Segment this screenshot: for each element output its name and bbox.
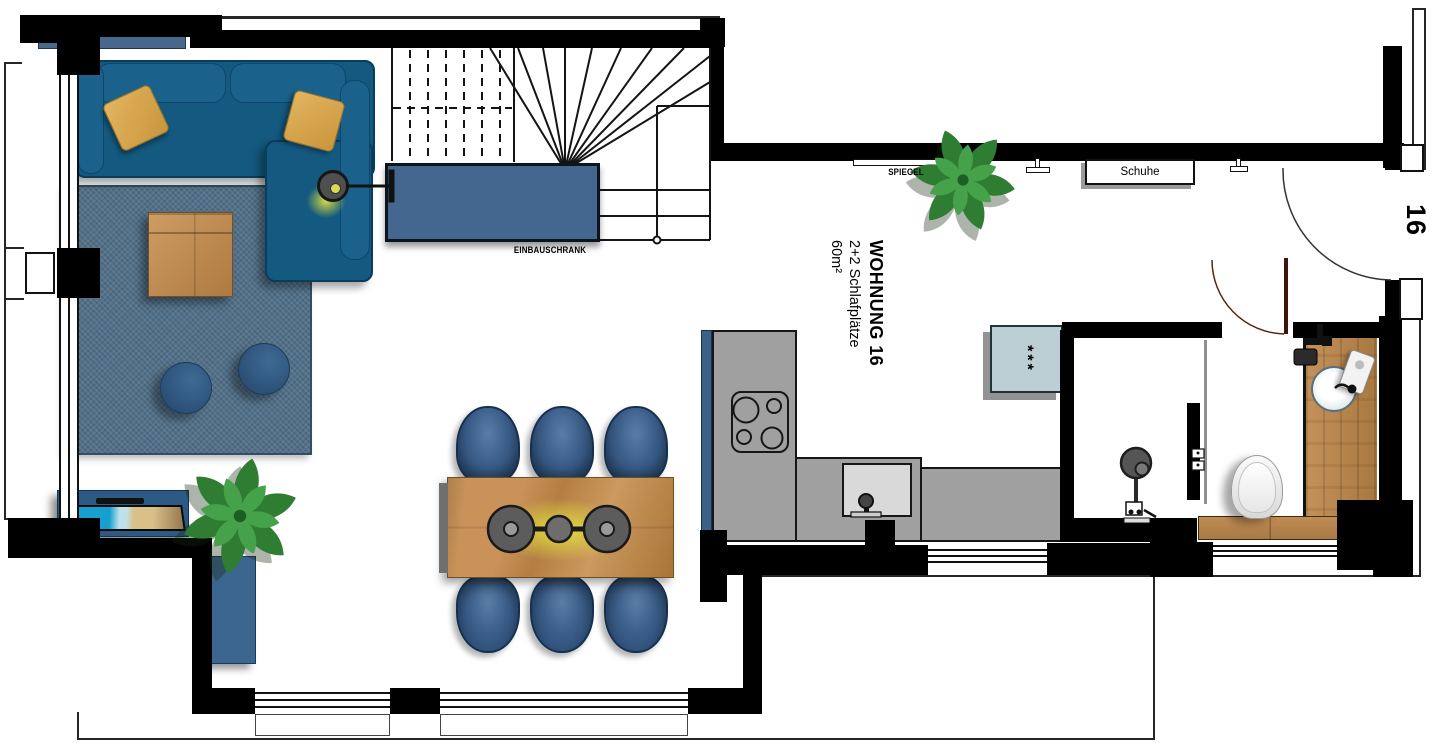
wall bbox=[700, 18, 725, 47]
outline bbox=[4, 62, 6, 520]
door-frame bbox=[1400, 144, 1424, 172]
kitchen-counter bbox=[920, 467, 1062, 542]
unit-capacity: 2+2 Schlafplätze bbox=[846, 240, 862, 366]
wall bbox=[57, 248, 100, 298]
dining-chair bbox=[456, 406, 520, 484]
outline bbox=[1424, 8, 1426, 170]
window bbox=[928, 549, 1047, 563]
window-sill bbox=[255, 714, 390, 736]
washer-symbol: *** bbox=[995, 325, 1059, 394]
dining-chair bbox=[604, 406, 668, 484]
outline bbox=[743, 575, 1421, 577]
mirror bbox=[853, 159, 945, 166]
outline bbox=[4, 247, 24, 249]
unit-label: WOHNUNG 16 2+2 Schlafplätze 60m² bbox=[828, 240, 886, 366]
door-jamb bbox=[1385, 148, 1401, 170]
wall bbox=[25, 538, 212, 558]
planter bbox=[210, 556, 256, 664]
wall bbox=[743, 575, 762, 712]
dining-chair bbox=[456, 575, 520, 653]
pouf bbox=[160, 362, 212, 414]
shower-glass bbox=[1204, 340, 1207, 504]
dining-chair bbox=[604, 575, 668, 653]
wall bbox=[192, 688, 255, 714]
window bbox=[1213, 545, 1337, 557]
window bbox=[59, 298, 79, 518]
wall-hook bbox=[1026, 167, 1050, 173]
wall-shower-partition bbox=[1187, 403, 1200, 500]
wall bbox=[1062, 322, 1222, 338]
wall bbox=[1150, 542, 1213, 577]
pendant-glow bbox=[470, 488, 650, 572]
mirror-label: SPIEGEL bbox=[866, 167, 947, 177]
wall bbox=[390, 688, 440, 714]
wall bbox=[192, 554, 212, 694]
outline bbox=[1412, 8, 1426, 10]
coffee-table bbox=[148, 212, 233, 297]
unit-area: 60m² bbox=[828, 240, 844, 366]
wall bbox=[724, 545, 865, 575]
bath-bench bbox=[1198, 516, 1338, 540]
freestanding-shower bbox=[1121, 448, 1156, 523]
toilet bbox=[1231, 455, 1283, 519]
wall bbox=[700, 530, 727, 602]
outline bbox=[1153, 577, 1155, 739]
plant bbox=[889, 113, 1032, 258]
dining-chair bbox=[530, 575, 594, 653]
window bbox=[255, 692, 390, 708]
window bbox=[440, 692, 688, 708]
cooktop bbox=[731, 391, 789, 453]
toilet-seat bbox=[1238, 462, 1276, 513]
wall-hook bbox=[1230, 166, 1248, 172]
sofa-cushion bbox=[96, 63, 226, 103]
wall bbox=[222, 30, 714, 48]
door-frame bbox=[1399, 278, 1423, 320]
wall bbox=[865, 520, 895, 575]
unit-door-number: 16 bbox=[1400, 204, 1431, 236]
soundbar bbox=[96, 498, 144, 504]
outline bbox=[77, 738, 1155, 740]
outline bbox=[77, 712, 79, 740]
wall bbox=[1062, 518, 1197, 542]
sofa-armrest bbox=[78, 64, 104, 174]
wall bbox=[1293, 322, 1388, 338]
outline bbox=[4, 298, 24, 300]
wall bbox=[1373, 500, 1413, 577]
wall bbox=[895, 545, 928, 575]
wall bbox=[57, 37, 100, 75]
bath-door-swing bbox=[1212, 260, 1284, 334]
wall bbox=[711, 45, 724, 161]
dining-table-edge bbox=[439, 483, 448, 573]
floor-lamp bbox=[317, 170, 349, 202]
outline bbox=[1419, 318, 1421, 577]
built-in-wardrobe-label: EINBAUSCHRANK bbox=[480, 245, 621, 255]
pier-box bbox=[25, 252, 55, 294]
washing-machine: *** bbox=[990, 325, 1063, 393]
shoe-cabinet-label: Schuhe bbox=[1120, 166, 1159, 178]
pouf bbox=[238, 343, 290, 395]
window-sill bbox=[440, 714, 688, 736]
outline bbox=[4, 62, 22, 64]
unit-title: WOHNUNG 16 bbox=[865, 240, 886, 366]
bath-door-leaf bbox=[1284, 258, 1288, 334]
wall bbox=[724, 143, 1404, 161]
wall bbox=[1047, 543, 1162, 575]
built-in-wardrobe bbox=[385, 163, 600, 242]
dining-chair bbox=[530, 406, 594, 484]
wall bbox=[190, 15, 222, 48]
entrance-door-swing bbox=[1283, 168, 1391, 280]
kitchen-sink bbox=[842, 463, 912, 517]
shoe-cabinet: Schuhe bbox=[1085, 159, 1195, 185]
floorplan-canvas: EINBAUSCHRANK *** SPIEGEL Schuhe WOHNUNG… bbox=[0, 0, 1440, 746]
wall bbox=[1060, 330, 1074, 542]
outline bbox=[190, 16, 720, 19]
wall bbox=[1379, 316, 1402, 518]
window bbox=[59, 75, 79, 248]
